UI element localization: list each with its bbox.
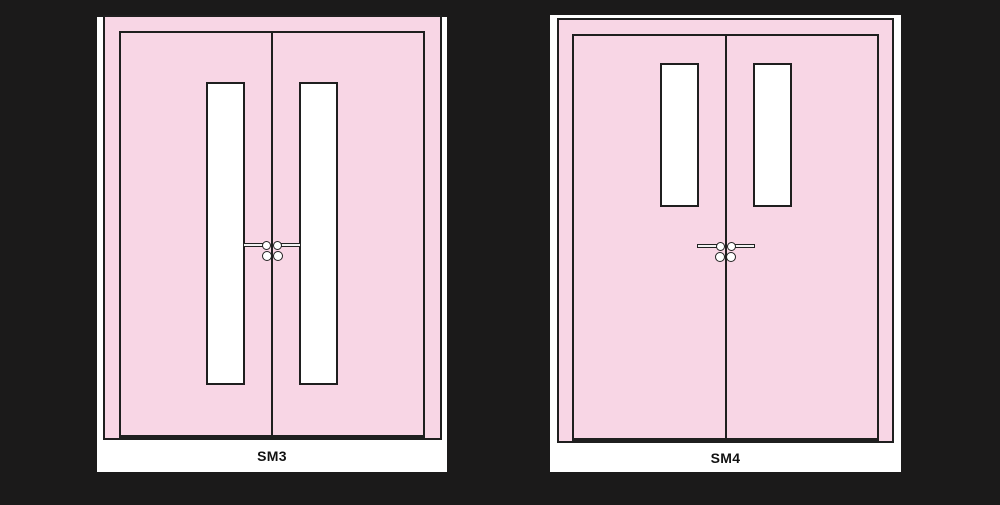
handle-rose-left-icon bbox=[716, 242, 725, 251]
label-band: SM4 bbox=[550, 443, 901, 472]
door-diagram-sm3: SM3 bbox=[97, 15, 447, 472]
handle-rose-right-icon bbox=[273, 241, 282, 250]
lock-cylinder-right-icon bbox=[273, 251, 283, 261]
door-leaf-left bbox=[574, 36, 726, 438]
drawing-canvas: SM3 bbox=[0, 0, 1000, 505]
lock-cylinder-left-icon bbox=[715, 252, 725, 262]
handle-rose-right-icon bbox=[727, 242, 736, 251]
door-leaf-right bbox=[726, 36, 878, 438]
door-diagram-sm4: SM4 bbox=[550, 15, 901, 472]
vision-panel bbox=[660, 63, 699, 207]
vision-panel bbox=[206, 82, 245, 385]
door-label: SM3 bbox=[257, 448, 287, 464]
door-label: SM4 bbox=[711, 450, 741, 466]
handle-rose-left-icon bbox=[262, 241, 271, 250]
lock-cylinder-left-icon bbox=[262, 251, 272, 261]
vision-panel bbox=[299, 82, 338, 385]
door-frame bbox=[557, 18, 894, 443]
door-leaves bbox=[119, 31, 425, 438]
vision-panel bbox=[753, 63, 792, 207]
door-leaf-left bbox=[121, 33, 272, 435]
lock-cylinder-right-icon bbox=[726, 252, 736, 262]
door-frame bbox=[103, 15, 442, 440]
door-leaf-right bbox=[272, 33, 423, 435]
door-leaves bbox=[572, 34, 879, 441]
label-band: SM3 bbox=[97, 440, 447, 472]
